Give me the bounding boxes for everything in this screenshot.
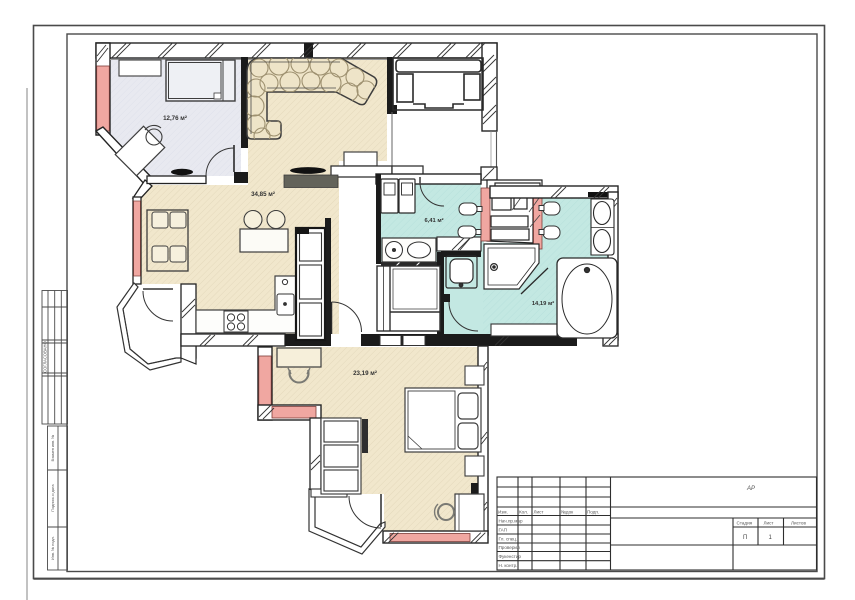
svg-text:№док: №док	[561, 510, 574, 515]
svg-text:6,41 м²: 6,41 м²	[424, 217, 443, 224]
svg-text:Стадия: Стадия	[737, 521, 753, 526]
svg-text:П: П	[743, 535, 747, 541]
svg-text:Листов: Листов	[791, 521, 806, 526]
svg-text:Взамен инв. №: Взамен инв. №	[51, 435, 55, 462]
svg-text:АР: АР	[746, 486, 755, 492]
svg-text:Кол.: Кол.	[519, 510, 528, 515]
svg-text:Изм.: Изм.	[498, 510, 508, 515]
svg-text:Проверил: Проверил	[499, 545, 520, 550]
svg-text:Лист: Лист	[764, 521, 775, 526]
svg-text:34,85 м²: 34,85 м²	[251, 191, 275, 198]
svg-text:14,19 м²: 14,19 м²	[532, 300, 554, 307]
svg-text:Подп.: Подп.	[587, 510, 599, 515]
svg-text:Гл. спец.: Гл. спец.	[499, 537, 518, 542]
svg-text:Инв. № подл.: Инв. № подл.	[51, 536, 55, 560]
svg-text:Нач.пр.мар: Нач.пр.мар	[499, 519, 523, 524]
svg-text:Н. контр.: Н. контр.	[499, 563, 518, 568]
svg-text:Фукенстир: Фукенстир	[499, 554, 522, 559]
svg-text:ГАП: ГАП	[499, 528, 508, 533]
svg-text:12,76 м²: 12,76 м²	[163, 115, 187, 122]
svg-text:Лист: Лист	[534, 510, 545, 515]
svg-text:СОГЛАСОВАНО: СОГЛАСОВАНО	[43, 340, 48, 372]
svg-text:23,19 м²: 23,19 м²	[353, 370, 377, 377]
svg-text:Подпись и дата: Подпись и дата	[51, 483, 55, 511]
